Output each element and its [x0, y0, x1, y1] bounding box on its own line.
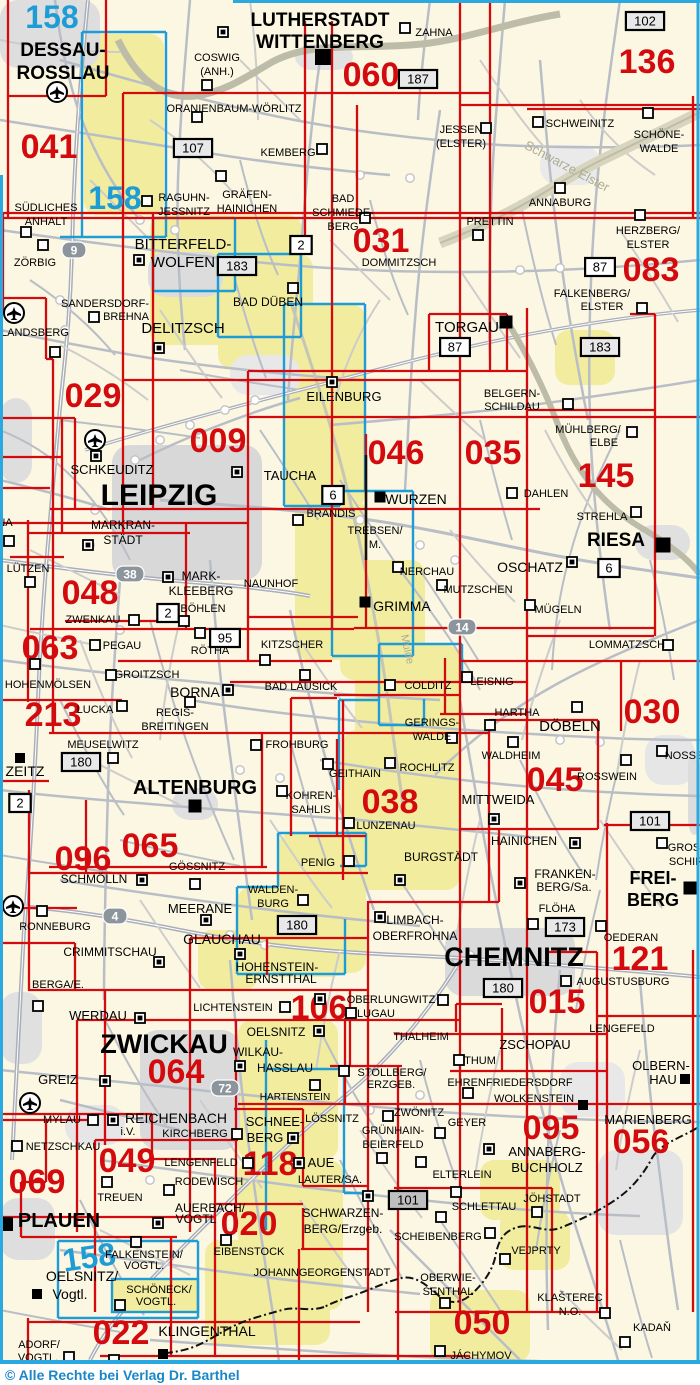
svg-text:FREI-: FREI-	[630, 868, 677, 888]
svg-text:LOMMATZSCH: LOMMATZSCH	[589, 639, 665, 651]
svg-text:FLÖHA: FLÖHA	[539, 903, 576, 915]
svg-text:Vogtl.: Vogtl.	[52, 1286, 87, 1302]
svg-text:045: 045	[527, 761, 584, 799]
svg-text:COLDITZ: COLDITZ	[404, 680, 451, 692]
svg-text:029: 029	[65, 377, 122, 415]
svg-text:EIBENSTOCK: EIBENSTOCK	[214, 1246, 285, 1258]
svg-text:THALHEIM: THALHEIM	[393, 1031, 449, 1043]
svg-text:009: 009	[190, 422, 247, 460]
svg-text:049: 049	[99, 1142, 156, 1180]
svg-text:RÖTHA: RÖTHA	[191, 645, 230, 657]
svg-text:LUNZENAU: LUNZENAU	[356, 820, 415, 832]
svg-text:PENIG: PENIG	[301, 857, 335, 869]
svg-text:HAU: HAU	[649, 1072, 676, 1087]
svg-text:2: 2	[297, 238, 304, 253]
svg-text:183: 183	[589, 340, 611, 355]
svg-text:FALKENBERG/: FALKENBERG/	[554, 288, 631, 300]
svg-text:ROSSWEIN: ROSSWEIN	[577, 771, 637, 783]
svg-text:BELGERN-: BELGERN-	[484, 388, 541, 400]
svg-text:GRÄFEN-: GRÄFEN-	[222, 189, 272, 201]
svg-text:WOLFEN: WOLFEN	[151, 254, 215, 271]
svg-text:VOGTL: VOGTL	[176, 1212, 217, 1226]
svg-text:ERZGEB.: ERZGEB.	[367, 1079, 415, 1091]
svg-text:BERG/Sa.: BERG/Sa.	[536, 880, 591, 894]
svg-text:ERNSTTHAL: ERNSTTHAL	[245, 972, 317, 986]
svg-text:JESSEN: JESSEN	[440, 124, 483, 136]
svg-text:LUGAU: LUGAU	[357, 1008, 395, 1020]
svg-text:BITTERFELD-: BITTERFELD-	[135, 236, 232, 253]
svg-text:BAD DÜBEN: BAD DÜBEN	[233, 295, 303, 309]
svg-text:TORGAU: TORGAU	[435, 319, 499, 336]
svg-text:9: 9	[71, 244, 78, 258]
svg-text:38: 38	[123, 568, 137, 582]
svg-text:LEISNIG: LEISNIG	[470, 676, 513, 688]
svg-text:BURG: BURG	[257, 898, 289, 910]
svg-text:095: 095	[523, 1109, 580, 1147]
svg-text:NETZSCHKAU: NETZSCHKAU	[26, 1141, 101, 1153]
svg-text:BAD: BAD	[332, 193, 355, 205]
svg-text:SCHWEINITZ: SCHWEINITZ	[546, 118, 615, 130]
svg-text:HERZBERG/: HERZBERG/	[616, 225, 681, 237]
svg-text:WALDEN-: WALDEN-	[248, 884, 299, 896]
svg-text:DÖBELN: DÖBELN	[539, 717, 601, 735]
svg-text:LICHTENSTEIN: LICHTENSTEIN	[193, 1002, 273, 1014]
svg-text:ZAHNA: ZAHNA	[415, 27, 453, 39]
svg-text:ELBE: ELBE	[590, 437, 618, 449]
svg-text:HARTHA: HARTHA	[494, 707, 540, 719]
svg-text:FROHBURG: FROHBURG	[266, 739, 329, 751]
svg-text:4: 4	[112, 910, 119, 924]
svg-text:WALDE: WALDE	[413, 731, 452, 743]
svg-text:LÖSSNITZ: LÖSSNITZ	[305, 1113, 359, 1125]
svg-text:STREHLA: STREHLA	[577, 511, 628, 523]
svg-text:AUGUSTUSBURG: AUGUSTUSBURG	[577, 976, 670, 988]
svg-text:038: 038	[362, 783, 419, 821]
svg-text:158: 158	[88, 180, 141, 216]
svg-text:GREIZ: GREIZ	[38, 1072, 78, 1087]
svg-text:SCHWARZEN-: SCHWARZEN-	[303, 1206, 384, 1220]
svg-text:ZEITZ: ZEITZ	[6, 763, 45, 779]
svg-text:SCHÖNECK/: SCHÖNECK/	[126, 1284, 192, 1296]
svg-text:136: 136	[619, 43, 676, 81]
svg-text:RIESA: RIESA	[587, 530, 645, 551]
svg-text:GROS: GROS	[668, 842, 700, 854]
svg-text:LENGEFELD: LENGEFELD	[589, 1023, 654, 1035]
svg-text:PLAUEN: PLAUEN	[18, 1210, 100, 1232]
svg-text:OBERLUNGWITZ: OBERLUNGWITZ	[347, 994, 436, 1006]
svg-text:107: 107	[182, 141, 204, 156]
svg-text:121: 121	[612, 940, 669, 978]
svg-text:PRETTIN: PRETTIN	[466, 216, 513, 228]
svg-text:BURGSTÄDT: BURGSTÄDT	[404, 850, 479, 864]
svg-text:030: 030	[624, 693, 681, 731]
svg-text:N.O.: N.O.	[559, 1306, 582, 1318]
svg-text:SÜDLICHES: SÜDLICHES	[15, 202, 78, 214]
svg-text:083: 083	[623, 251, 680, 289]
svg-text:BERG: BERG	[327, 221, 358, 233]
svg-text:WITTENBERG: WITTENBERG	[256, 32, 384, 53]
svg-text:REICHENBACH: REICHENBACH	[125, 1110, 227, 1126]
svg-text:TREBSEN/: TREBSEN/	[347, 525, 403, 537]
svg-text:145: 145	[578, 457, 635, 495]
svg-text:LÜTZEN: LÜTZEN	[7, 563, 50, 575]
svg-text:WALDE: WALDE	[640, 143, 679, 155]
svg-text:SCHMÖLLN: SCHMÖLLN	[61, 872, 128, 886]
svg-text:AUE: AUE	[308, 1155, 335, 1170]
svg-text:SCHLETTAU: SCHLETTAU	[452, 1201, 517, 1213]
svg-text:BEIERFELD: BEIERFELD	[362, 1139, 423, 1151]
svg-text:OBERFROHNA: OBERFROHNA	[373, 929, 458, 943]
svg-text:95: 95	[218, 631, 232, 646]
svg-text:PEGAU: PEGAU	[103, 640, 142, 652]
svg-text:KIRCHBERG: KIRCHBERG	[162, 1128, 227, 1140]
svg-text:OELSNITZ/: OELSNITZ/	[46, 1268, 118, 1284]
svg-text:ANNABURG: ANNABURG	[529, 197, 591, 209]
svg-text:ROSSLAU: ROSSLAU	[17, 63, 110, 84]
svg-text:KOHREN-: KOHREN-	[286, 790, 337, 802]
svg-text:035: 035	[465, 434, 522, 472]
svg-text:NOSSE: NOSSE	[665, 750, 700, 762]
svg-text:SCHEIBENBERG: SCHEIBENBERG	[394, 1231, 481, 1243]
svg-text:ANHALT: ANHALT	[25, 216, 68, 228]
svg-text:WURZEN: WURZEN	[385, 491, 446, 507]
svg-text:EILENBURG: EILENBURG	[306, 389, 381, 404]
svg-text:ROCHLITZ: ROCHLITZ	[400, 762, 455, 774]
svg-text:EHRENFRIEDERSDORF: EHRENFRIEDERSDORF	[447, 1077, 573, 1089]
svg-text:ZSCHOPAU: ZSCHOPAU	[499, 1037, 570, 1052]
svg-text:050: 050	[454, 1304, 511, 1342]
svg-text:BAD LAUSICK: BAD LAUSICK	[265, 681, 338, 693]
svg-text:BÖHLEN: BÖHLEN	[180, 603, 225, 615]
svg-text:BUCHHOLZ: BUCHHOLZ	[511, 1160, 583, 1175]
svg-text:WALDHEIM: WALDHEIM	[482, 750, 541, 762]
svg-text:CRIMMITSCHAU: CRIMMITSCHAU	[63, 945, 156, 959]
svg-text:LEIPZIG: LEIPZIG	[101, 479, 218, 512]
svg-text:GÖSSNITZ: GÖSSNITZ	[169, 861, 226, 873]
svg-text:WILKAU-: WILKAU-	[233, 1045, 283, 1059]
svg-text:TAUCHA: TAUCHA	[264, 468, 317, 483]
svg-text:ELTERLEIN: ELTERLEIN	[432, 1169, 491, 1181]
svg-text:MÜHLBERG/: MÜHLBERG/	[555, 424, 621, 436]
svg-text:72: 72	[218, 1082, 232, 1096]
svg-text:RODEWISCH: RODEWISCH	[175, 1176, 244, 1188]
svg-text:046: 046	[368, 434, 425, 472]
svg-text:BERG: BERG	[627, 890, 679, 910]
svg-text:OSCHATZ: OSCHATZ	[497, 559, 563, 575]
svg-text:LAUTER/SA.: LAUTER/SA.	[298, 1174, 362, 1186]
svg-text:FRANKEN-: FRANKEN-	[534, 867, 595, 881]
svg-text:GERINGS-: GERINGS-	[405, 717, 460, 729]
svg-text:SCHIR: SCHIR	[669, 856, 700, 868]
svg-text:MÜGELN: MÜGELN	[534, 604, 581, 616]
svg-text:MYLAU: MYLAU	[43, 1114, 81, 1126]
svg-text:ALTENBURG: ALTENBURG	[133, 777, 257, 799]
svg-text:REGIS-: REGIS-	[156, 707, 194, 719]
svg-text:GEYER: GEYER	[448, 1117, 487, 1129]
svg-text:HAINICHEN: HAINICHEN	[491, 834, 557, 848]
svg-text:87: 87	[593, 260, 607, 275]
svg-text:102: 102	[634, 14, 656, 29]
svg-text:MARK-: MARK-	[182, 569, 221, 583]
svg-text:MARIENBERG: MARIENBERG	[604, 1112, 691, 1127]
svg-text:GROITZSCH: GROITZSCH	[115, 669, 180, 681]
svg-text:SCHÖNE-: SCHÖNE-	[634, 129, 685, 141]
svg-text:DOMMITZSCH: DOMMITZSCH	[362, 257, 437, 269]
svg-text:SCHMIEDE-: SCHMIEDE-	[312, 207, 374, 219]
svg-text:DELITZSCH: DELITZSCH	[141, 320, 224, 337]
svg-text:041: 041	[21, 128, 78, 166]
svg-text:TREUEN: TREUEN	[97, 1192, 142, 1204]
svg-text:ZWICKAU: ZWICKAU	[100, 1029, 227, 1059]
svg-text:HAINICHEN: HAINICHEN	[217, 203, 278, 215]
svg-text:SCHILDAU: SCHILDAU	[484, 401, 540, 413]
svg-text:SAHLIS: SAHLIS	[291, 804, 330, 816]
svg-text:158: 158	[25, 0, 78, 35]
svg-text:HASSLAU: HASSLAU	[257, 1061, 313, 1075]
svg-text:KEMBERG: KEMBERG	[260, 147, 315, 159]
svg-text:i.V.: i.V.	[121, 1126, 136, 1138]
svg-text:BREITINGEN: BREITINGEN	[141, 721, 208, 733]
svg-text:VOGTL.: VOGTL.	[124, 1260, 164, 1272]
svg-text:069: 069	[9, 1163, 66, 1201]
svg-text:OLBERN-: OLBERN-	[632, 1058, 690, 1073]
svg-text:ANNABERG-: ANNABERG-	[508, 1144, 585, 1159]
svg-text:LANDSBERG: LANDSBERG	[1, 327, 69, 339]
svg-text:SCHNEE-: SCHNEE-	[246, 1114, 305, 1129]
svg-text:6: 6	[329, 488, 336, 503]
svg-text:056: 056	[613, 1123, 670, 1161]
svg-text:HOHENMÖLSEN: HOHENMÖLSEN	[5, 679, 91, 691]
svg-text:JESSNITZ: JESSNITZ	[158, 206, 210, 218]
svg-text:183: 183	[226, 259, 248, 274]
svg-text:BERGA/E.: BERGA/E.	[32, 979, 84, 991]
svg-text:NAUNHOF: NAUNHOF	[244, 578, 299, 590]
svg-text:DAHLEN: DAHLEN	[524, 488, 569, 500]
svg-text:SCHKEUDITZ: SCHKEUDITZ	[70, 462, 153, 477]
svg-text:(ELSTER): (ELSTER)	[436, 138, 486, 150]
svg-text:ZWÖNITZ: ZWÖNITZ	[394, 1107, 444, 1119]
svg-text:GLAUCHAU: GLAUCHAU	[183, 931, 261, 947]
svg-text:© Alle Rechte bei Verlag Dr. B: © Alle Rechte bei Verlag Dr. Barthel	[5, 1367, 240, 1383]
svg-text:OELSNITZ: OELSNITZ	[247, 1025, 306, 1039]
svg-text:BORNA: BORNA	[170, 684, 220, 700]
svg-text:180: 180	[70, 755, 92, 770]
svg-text:2: 2	[16, 796, 23, 811]
svg-text:JOHANNGEORGENSTADT: JOHANNGEORGENSTADT	[254, 1267, 391, 1279]
svg-text:ORANIENBAUM-WÖRLITZ: ORANIENBAUM-WÖRLITZ	[166, 103, 301, 115]
svg-text:SANDERSDORF-: SANDERSDORF-	[61, 298, 149, 310]
svg-text:M.: M.	[369, 539, 381, 551]
svg-text:060: 060	[343, 56, 400, 94]
svg-text:ELSTER: ELSTER	[627, 239, 670, 251]
svg-text:STÄDT: STÄDT	[103, 533, 143, 547]
svg-text:KITZSCHER: KITZSCHER	[261, 639, 323, 651]
svg-text:BRANDIS: BRANDIS	[307, 508, 356, 520]
svg-text:WOLKENSTEIN: WOLKENSTEIN	[494, 1093, 574, 1105]
svg-text:180: 180	[492, 981, 514, 996]
svg-text:LENGENFELD: LENGENFELD	[164, 1157, 237, 1169]
svg-text:KLAŠTEREC: KLAŠTEREC	[537, 1291, 602, 1304]
svg-text:022: 022	[93, 1314, 150, 1352]
svg-text:KLEEBERG: KLEEBERG	[169, 584, 234, 598]
svg-text:GRÜNHAIN-: GRÜNHAIN-	[362, 1125, 425, 1137]
svg-text:031: 031	[353, 222, 410, 260]
svg-text:MARKRAN-: MARKRAN-	[91, 518, 155, 532]
svg-text:87: 87	[448, 340, 462, 355]
svg-text:STOLLBERG/: STOLLBERG/	[358, 1067, 428, 1079]
svg-text:VOGTL.: VOGTL.	[136, 1296, 176, 1308]
svg-text:NERCHAU: NERCHAU	[400, 566, 454, 578]
svg-text:101: 101	[397, 1193, 419, 1208]
svg-text:COSWIG: COSWIG	[194, 52, 240, 64]
svg-text:BERG/Erzgeb.: BERG/Erzgeb.	[304, 1222, 383, 1236]
svg-text:101: 101	[639, 814, 661, 829]
svg-text:14: 14	[455, 621, 469, 635]
svg-text:065: 065	[122, 827, 179, 865]
svg-text:015: 015	[529, 983, 586, 1021]
svg-text:187: 187	[407, 72, 429, 87]
svg-text:KADAŇ: KADAŇ	[633, 1321, 671, 1334]
svg-text:JÖHSTADT: JÖHSTADT	[523, 1193, 581, 1205]
svg-text:2: 2	[164, 606, 171, 621]
svg-text:HARTENSTEIN: HARTENSTEIN	[260, 1092, 330, 1103]
svg-text:LIMBACH-: LIMBACH-	[386, 913, 443, 927]
svg-text:173: 173	[554, 920, 576, 935]
svg-text:GEITHAIN: GEITHAIN	[329, 768, 381, 780]
svg-text:MEERANE: MEERANE	[168, 901, 233, 916]
svg-text:048: 048	[62, 574, 119, 612]
svg-text:213: 213	[25, 696, 82, 734]
svg-text:GRIMMA: GRIMMA	[373, 598, 431, 614]
svg-text:LUCKA: LUCKA	[77, 704, 114, 716]
svg-text:OEDERAN: OEDERAN	[604, 932, 658, 944]
svg-text:KLINGENTHAL: KLINGENTHAL	[158, 1323, 255, 1339]
svg-text:ELSTER: ELSTER	[581, 301, 624, 313]
svg-text:THUM: THUM	[464, 1055, 496, 1067]
svg-text:LUTHERSTADT: LUTHERSTADT	[251, 10, 390, 31]
svg-text:6: 6	[605, 561, 612, 576]
svg-text:OBERWIE-: OBERWIE-	[420, 1272, 476, 1284]
svg-text:MEUSELWITZ: MEUSELWITZ	[67, 739, 139, 751]
svg-text:SENTHAL: SENTHAL	[423, 1286, 474, 1298]
svg-text:MUTZSCHEN: MUTZSCHEN	[443, 584, 512, 596]
svg-text:VEJPRTY: VEJPRTY	[511, 1245, 561, 1257]
svg-text:(ANH.): (ANH.)	[200, 66, 234, 78]
svg-text:ZÖRBIG: ZÖRBIG	[14, 257, 56, 269]
svg-text:BERG: BERG	[247, 1130, 284, 1145]
svg-text:ZWENKAU: ZWENKAU	[66, 614, 121, 626]
svg-text:RONNEBURG: RONNEBURG	[19, 921, 91, 933]
svg-text:ADORF/: ADORF/	[18, 1339, 61, 1351]
svg-text:WERDAU: WERDAU	[69, 1008, 127, 1023]
svg-text:RAGUHN-: RAGUHN-	[158, 192, 210, 204]
svg-text:180: 180	[286, 918, 308, 933]
svg-text:MITTWEIDA: MITTWEIDA	[462, 792, 535, 807]
svg-text:CHEMNITZ: CHEMNITZ	[444, 942, 583, 972]
svg-text:DESSAU-: DESSAU-	[20, 40, 106, 61]
